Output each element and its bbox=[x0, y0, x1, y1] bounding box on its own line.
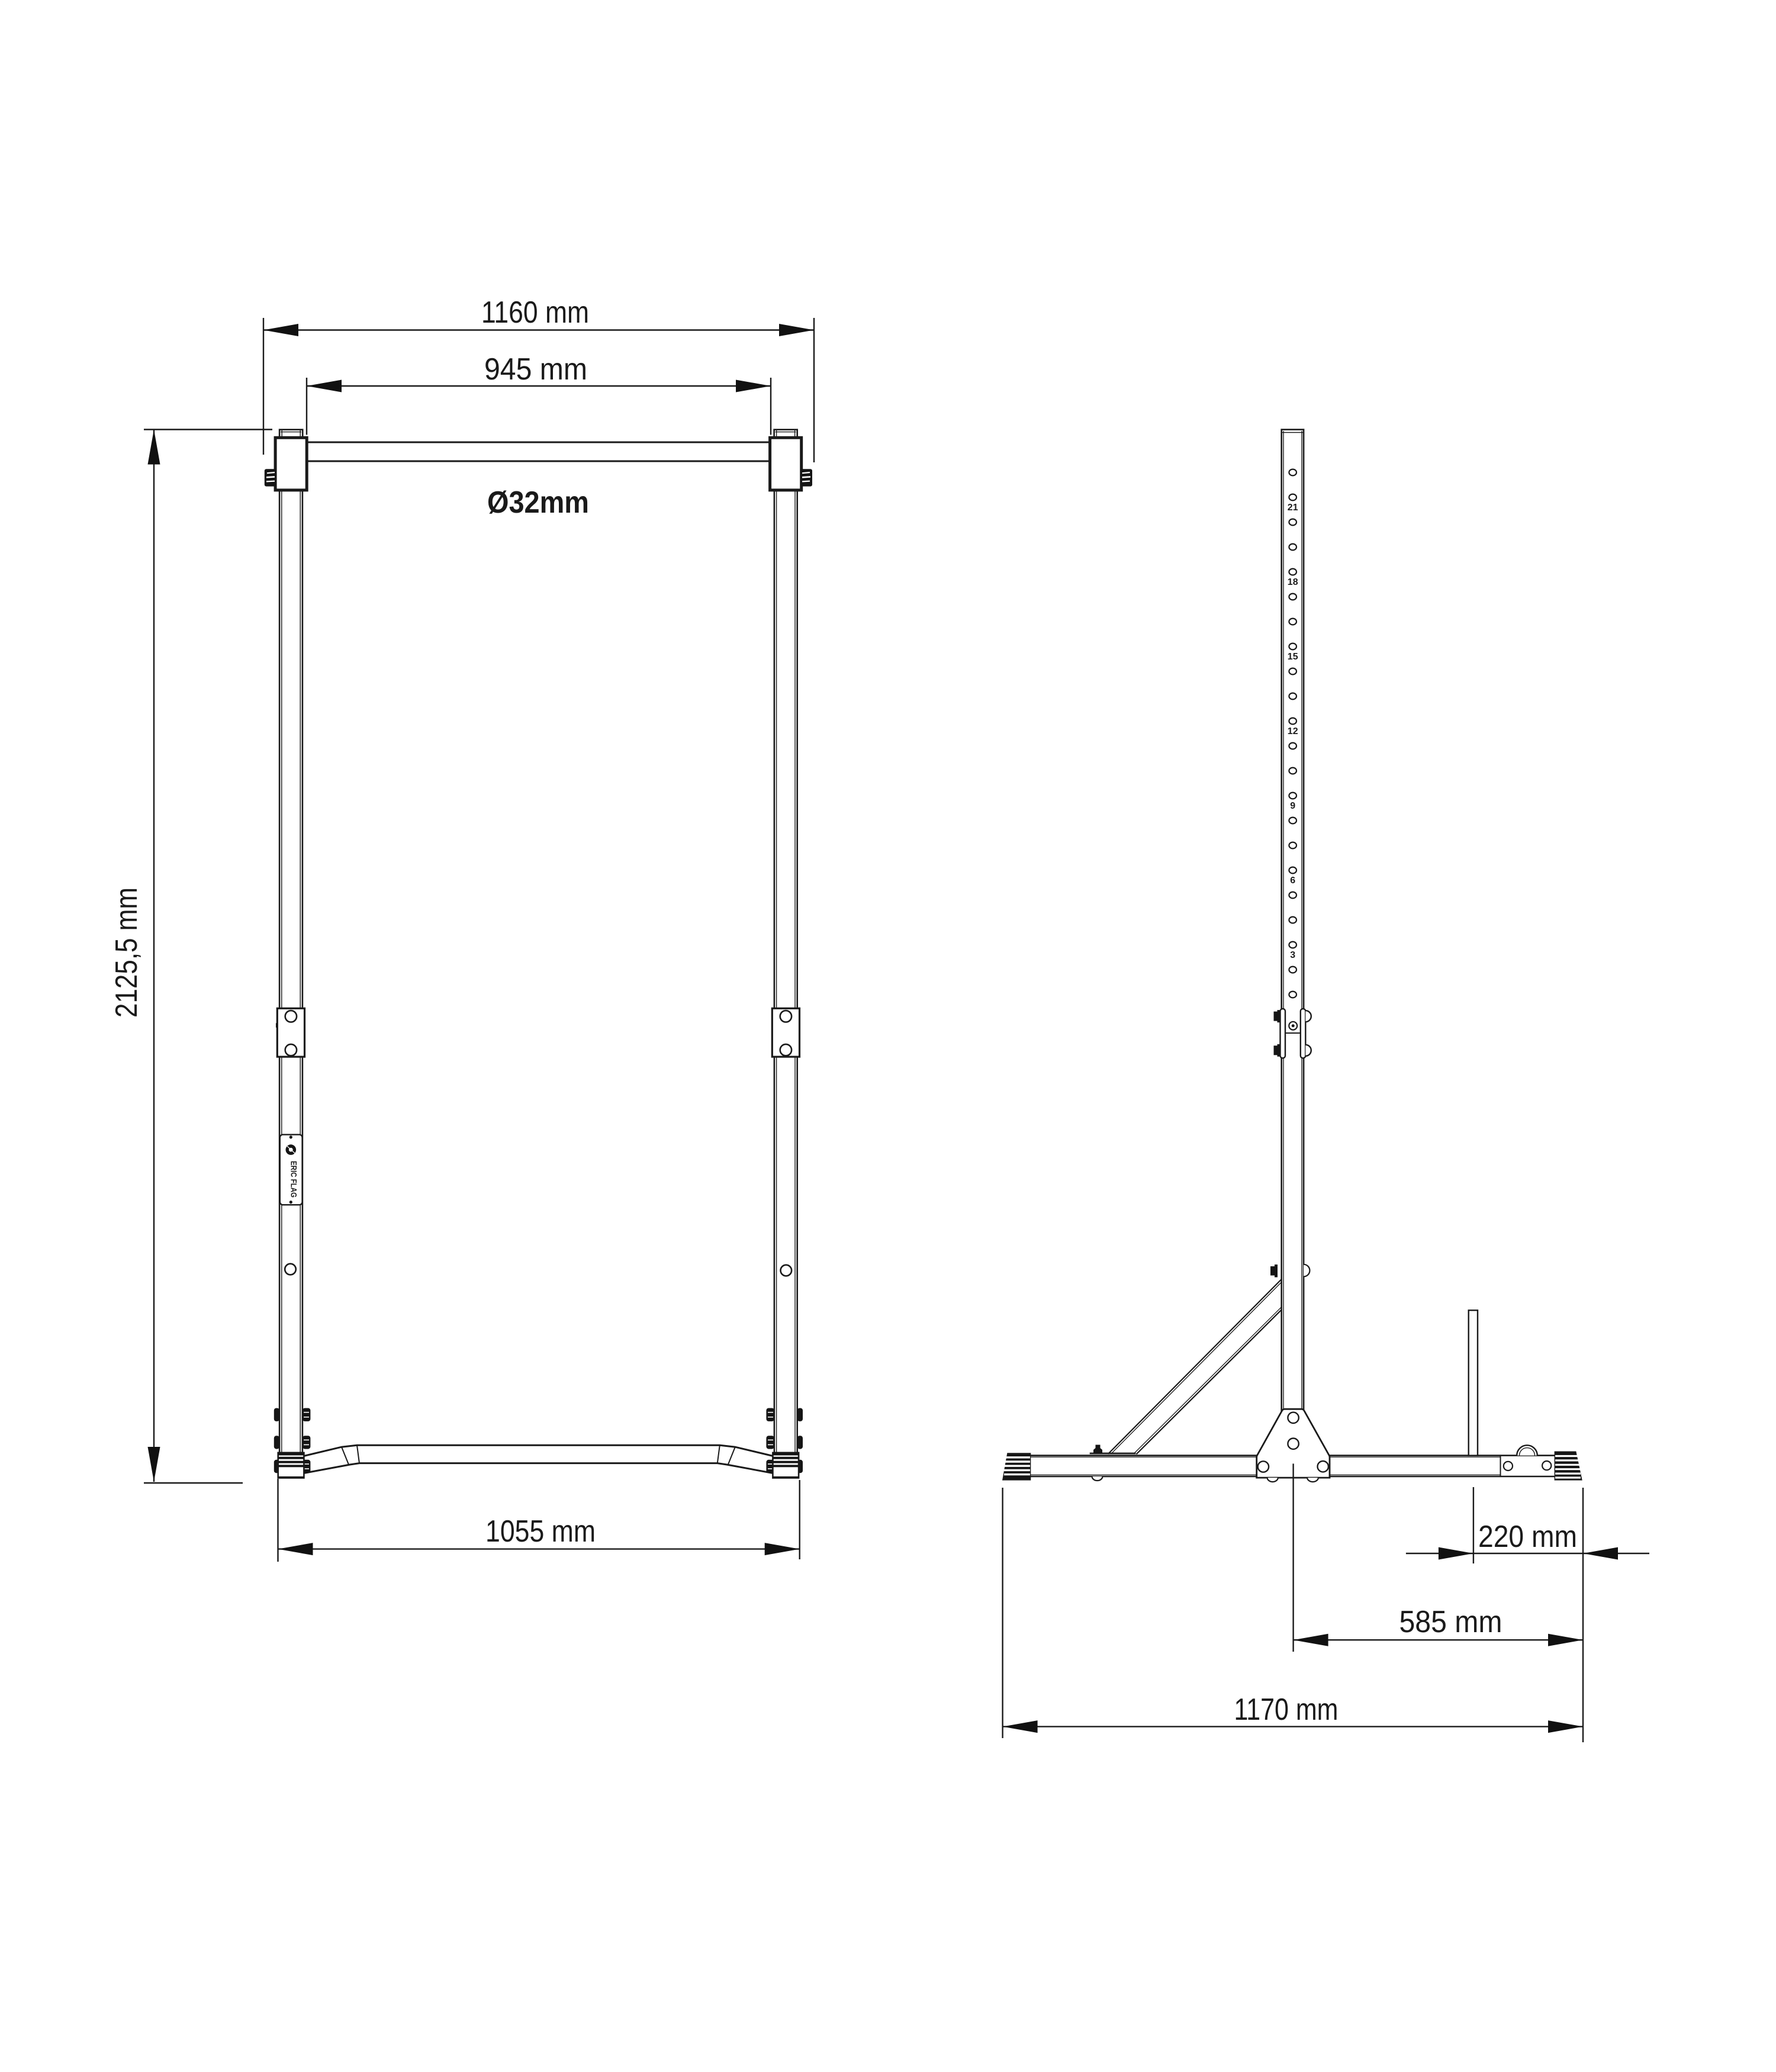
svg-text:1160 mm: 1160 mm bbox=[481, 295, 589, 330]
svg-text:1170 mm: 1170 mm bbox=[1234, 1693, 1339, 1727]
svg-text:9: 9 bbox=[1290, 801, 1295, 811]
svg-text:18: 18 bbox=[1288, 577, 1298, 587]
svg-text:21: 21 bbox=[1288, 503, 1298, 513]
svg-text:2125,5 mm: 2125,5 mm bbox=[110, 887, 144, 1018]
svg-text:6: 6 bbox=[1290, 876, 1295, 886]
svg-text:3: 3 bbox=[1290, 950, 1295, 960]
svg-text:1055 mm: 1055 mm bbox=[485, 1514, 596, 1549]
svg-text:220 mm: 220 mm bbox=[1478, 1520, 1577, 1554]
svg-text:945 mm: 945 mm bbox=[484, 352, 587, 387]
svg-text:12: 12 bbox=[1288, 726, 1298, 736]
svg-text:ERIC FLAG: ERIC FLAG bbox=[289, 1161, 298, 1198]
svg-text:Ø32mm: Ø32mm bbox=[487, 485, 589, 520]
svg-text:15: 15 bbox=[1288, 652, 1298, 662]
svg-text:585 mm: 585 mm bbox=[1399, 1605, 1502, 1639]
